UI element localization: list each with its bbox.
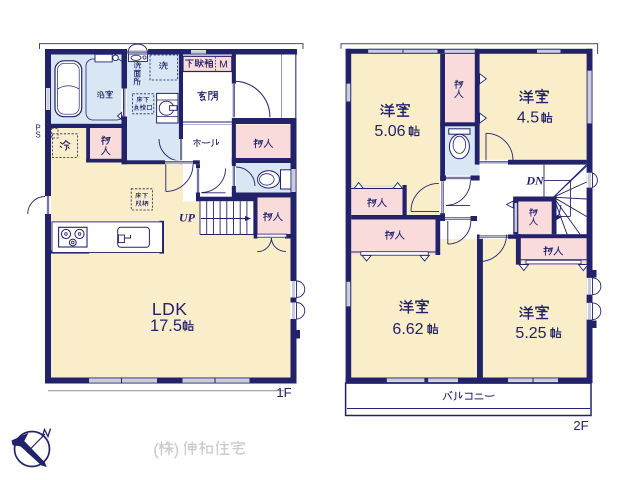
svg-text:UP: UP bbox=[179, 211, 196, 225]
svg-text:DN: DN bbox=[525, 174, 545, 188]
svg-text:): ) bbox=[174, 440, 180, 459]
svg-text:5.06: 5.06 bbox=[374, 123, 405, 140]
svg-text:(: ( bbox=[153, 440, 159, 459]
svg-text:4.5: 4.5 bbox=[517, 110, 539, 127]
svg-text:17.5: 17.5 bbox=[150, 317, 182, 335]
svg-text:1F: 1F bbox=[276, 385, 291, 400]
svg-text:M: M bbox=[219, 59, 228, 71]
svg-text:S: S bbox=[35, 131, 40, 140]
svg-text:2F: 2F bbox=[573, 418, 588, 433]
svg-text:5.25: 5.25 bbox=[515, 325, 546, 342]
svg-text:6.62: 6.62 bbox=[392, 321, 423, 338]
